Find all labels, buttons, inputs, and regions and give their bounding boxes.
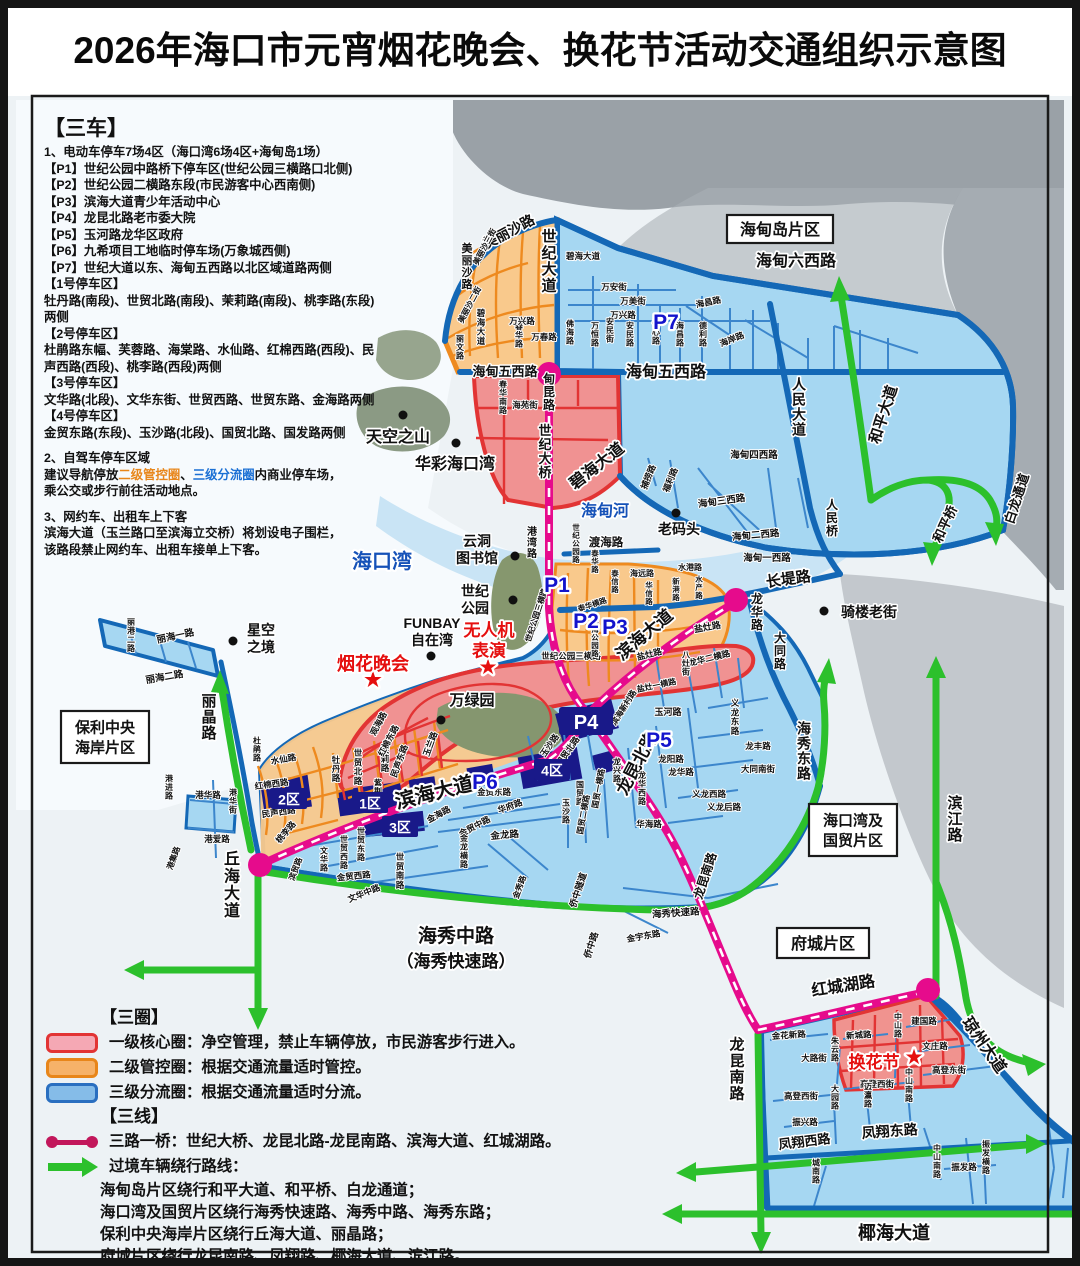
road-label: 德利路 xyxy=(698,320,708,347)
road-label: 牡丹路 xyxy=(332,755,341,783)
road-label: 龙丰路 xyxy=(744,741,771,751)
legend-line: 【P1】世纪公园中路桥下停车区(世纪公园三横路口北侧) xyxy=(44,161,380,178)
parking-marker: P7 xyxy=(653,311,679,334)
road-label: 甸昆路 xyxy=(542,371,556,412)
legend-line: 文华路(北段)、文华东街、世贸西路、世贸东路、金海路两侧 xyxy=(44,392,380,409)
control-ring-swatch xyxy=(46,1058,98,1078)
legend-line: 【P7】世纪大道以东、海甸五西路以北区域道路两侧 xyxy=(44,260,380,277)
road-label: 海甸五西路 xyxy=(626,362,707,381)
road-label: 龙阳路 xyxy=(657,754,684,764)
road-label: 华信路 xyxy=(645,580,653,606)
legend-line: 乘公交或步行前往活动地点。 xyxy=(44,483,380,500)
road-label: 龙兴路 xyxy=(612,756,622,783)
legend-line: 3、网约车、出租车上下客 xyxy=(44,509,380,526)
road-label: 万兴路 xyxy=(508,316,535,326)
legend-line: 【4号停车区】 xyxy=(44,408,380,425)
road-label: 义龙东路 xyxy=(730,698,740,736)
poi-dot xyxy=(509,596,518,605)
road-label: 安民路 xyxy=(626,320,635,347)
poi-label: 华彩海口湾 xyxy=(415,454,495,473)
poi-dot xyxy=(399,411,408,420)
event-label: 烟花晚会 xyxy=(337,653,409,674)
road-label: 万春路 xyxy=(530,332,557,342)
legend-rings-header: 【三圈】 xyxy=(100,1007,646,1029)
legend-line: 该路段禁止网约车、出租车接单上下客。 xyxy=(44,542,380,559)
road-label: 泰华路 xyxy=(590,548,599,574)
poi-dot xyxy=(820,607,829,616)
road-label: 丽港二路 xyxy=(127,618,136,653)
legend-line: 【P6】九希项目工地临时停车场(万象城西侧) xyxy=(44,243,380,260)
road-label: 金龙横路 xyxy=(459,833,469,869)
legend-item-core: 一级核心圈：净空管理，禁止车辆停放，市民游客步行进入。 xyxy=(46,1031,646,1054)
parking-marker: P4 xyxy=(574,712,599,734)
poi-dot xyxy=(672,509,681,518)
road-label: 新港路 xyxy=(672,576,680,602)
road-label: 美丽沙路 xyxy=(462,241,474,291)
road-label: 龙华路 xyxy=(751,591,764,632)
road-label: 朱云路 xyxy=(831,1035,840,1062)
bypass-line-baoli: 保利中央海岸片区绕行丘海大道、丽晶路； xyxy=(100,1224,646,1246)
poi-label: 老码头 xyxy=(658,521,700,537)
legend-parking: 【三车】 1、电动车停车7场4区（海口湾6场4区+海甸岛1场）【P1】世纪公园中… xyxy=(44,112,380,558)
road-label: 大路街 xyxy=(801,1053,827,1063)
control-ring-label: 二级管控圈：根据交通流量适时管控。 xyxy=(109,1056,371,1079)
road-label: 泰信路 xyxy=(610,568,619,594)
road-label: 水产路 xyxy=(695,574,703,600)
district-box-label: 保利中央 xyxy=(74,718,136,736)
poi-dot xyxy=(511,552,520,561)
district-box-label: 府城片区 xyxy=(791,934,855,953)
road-label: 大同路 xyxy=(774,630,787,671)
poi-label: FUNBAY xyxy=(403,615,461,631)
road-label: 大同南街 xyxy=(741,764,776,774)
road-label: 振发路 xyxy=(951,1162,977,1172)
road-label: 振发横路 xyxy=(981,1139,991,1175)
poi-dot xyxy=(427,652,436,661)
road-label: 文庄路 xyxy=(922,1041,948,1051)
legend-spacer xyxy=(44,441,380,450)
road-label: 万安街 xyxy=(600,282,627,292)
road-label: 世贸南路 xyxy=(396,852,405,890)
poi-dot xyxy=(452,439,461,448)
poi-label: 之境 xyxy=(247,639,275,655)
road-label: 高登西街 xyxy=(784,1091,819,1101)
road-label: 义龙西路 xyxy=(691,789,727,799)
road-label: 城南路 xyxy=(812,1157,821,1184)
event-label: 换花节 xyxy=(849,1052,900,1072)
poi-dot xyxy=(437,716,446,725)
parking-marker: P2 xyxy=(573,610,599,633)
road-label: 港华街 xyxy=(228,787,238,814)
road-label: 海远路 xyxy=(630,568,655,578)
road-label: 世贸西路 xyxy=(340,834,349,870)
road-label: 中山南路 xyxy=(933,1143,942,1179)
road-label: 碧海大道 xyxy=(565,251,601,261)
road-label: 世贸北路 xyxy=(354,748,363,786)
road-label: 渡海路 xyxy=(589,535,624,549)
district-box-label: 国贸片区 xyxy=(823,831,883,849)
bypass-line-fucheng: 府城片区绕行龙昆南路、凤翔路、椰海大道、滨江路。 xyxy=(100,1246,646,1266)
legend-line: 滨海大道（玉兰路口至滨海立交桥）将划设电子围栏， xyxy=(44,525,380,542)
poi-label: 世纪 xyxy=(461,583,489,599)
zone-tag: 3区 xyxy=(389,820,411,836)
road-label: 中山路 xyxy=(894,1011,903,1038)
road-label: 新城路 xyxy=(846,1029,873,1041)
road-label: 玉沙路 xyxy=(562,798,571,824)
road-label: 港爱路 xyxy=(204,834,230,844)
road-label: 海甸六西路 xyxy=(756,251,837,270)
legend-line: 【P4】龙昆北路老市委大院 xyxy=(44,210,380,227)
road-label: 港华路 xyxy=(195,790,221,800)
legend-line: 【2号停车区】 xyxy=(44,326,380,343)
road-label: 滨江路 xyxy=(947,794,963,844)
poster-page: 2026年海口市元宵烟花晚会、换花节活动交通组织示意图 xyxy=(0,0,1080,1266)
road-label: 水港路 xyxy=(677,562,703,572)
road-label: 安民街 xyxy=(605,316,614,343)
road-label: 八灶街 xyxy=(681,650,691,676)
legend-line: 杜鹃路东幅、芙蓉路、海棠路、水仙路、红棉西路(西段)、民声西路(西段)、桃李路(… xyxy=(44,342,380,375)
legend-parking-header: 【三车】 xyxy=(44,112,380,142)
road-label: 丽文路 xyxy=(456,334,465,360)
bypass-header: 过境车辆绕行路线： xyxy=(109,1155,248,1178)
road-label: 高登东街 xyxy=(932,1065,967,1075)
legend-line: 建议导航停放二级管控圈、三级分流圈内商业停车场， xyxy=(44,467,380,484)
legend-line: 金贸东路(东段)、玉沙路(北段)、国贸北路、国发路两侧 xyxy=(44,425,380,442)
poi-label: 云洞 xyxy=(463,533,491,549)
road-label: 中山南路 xyxy=(905,1067,914,1103)
event-label: 无人机 xyxy=(463,620,515,640)
legend-line: 【1号停车区】 xyxy=(44,276,380,293)
route-line-swatch xyxy=(46,1132,98,1152)
zone-tag: 4区 xyxy=(541,763,563,779)
legend-item-route: 三路一桥：世纪大桥、龙昆北路-龙昆南路、滨海大道、红城湖路。 xyxy=(46,1130,646,1153)
divert-ring-swatch xyxy=(46,1083,98,1103)
legend-item-control: 二级管控圈：根据交通流量适时管控。 xyxy=(46,1056,646,1079)
legend-rings-lines: 【三圈】 一级核心圈：净空管理，禁止车辆停放，市民游客步行进入。 二级管控圈：根… xyxy=(46,1007,646,1266)
legend-line: 【3号停车区】 xyxy=(44,375,380,392)
road-label: 海甸一西路 xyxy=(743,552,791,564)
road-label: 杜鹃路 xyxy=(253,735,262,762)
poi-dot xyxy=(229,637,238,646)
poi-label: 骑楼老街 xyxy=(841,604,897,620)
district-box-label: 海岸片区 xyxy=(75,738,135,756)
road-label: 丽晶路 xyxy=(201,693,217,742)
legend-spacer xyxy=(44,500,380,509)
road-label: 港进路 xyxy=(165,773,174,800)
legend-line: 【P5】玉河路龙华区政府 xyxy=(44,227,380,244)
district-box-label: 海口湾及 xyxy=(823,811,884,829)
road-label: 建国路 xyxy=(910,1016,937,1026)
road-label: 大园路 xyxy=(831,1083,840,1110)
road-label: 龙华路 xyxy=(667,767,694,777)
legend-line: 【P2】世纪公园二横路东段(市民游客中心西南侧) xyxy=(44,177,380,194)
bypass-line-haidian: 海甸岛片区绕行和平大道、和平桥、白龙通道； xyxy=(100,1180,646,1202)
poi-label: 自在湾 xyxy=(411,632,453,648)
legend-lines-header: 【三线】 xyxy=(100,1106,646,1128)
road-label: 万恒路 xyxy=(590,321,600,347)
divert-ring-label: 三级分流圈：根据交通流量适时分流。 xyxy=(109,1081,371,1104)
road-label: 海甸四西路 xyxy=(730,449,778,461)
road-label: 佛海路 xyxy=(565,318,575,345)
road-label: 世纪公园路 xyxy=(572,522,580,564)
road-label: 世纪大道 xyxy=(541,228,556,295)
road-label: 海甸五西路 xyxy=(472,364,538,379)
road-label: （海秀快速路） xyxy=(397,951,516,971)
road-label: 丘海大道 xyxy=(224,850,240,920)
parking-marker: P1 xyxy=(544,574,570,597)
legend-item-divert: 三级分流圈：根据交通流量适时分流。 xyxy=(46,1081,646,1104)
parking-marker: P5 xyxy=(646,729,672,752)
road-label: 文华路 xyxy=(320,845,329,872)
core-ring-swatch xyxy=(46,1033,98,1053)
legend-item-bypass: 过境车辆绕行路线： xyxy=(46,1155,646,1178)
zone-tag: 1区 xyxy=(359,796,381,812)
road-label: 世纪大桥 xyxy=(538,423,552,480)
road-label: 碧海大道 xyxy=(476,308,486,346)
legend-line: 【P3】滨海大道青少年活动中心 xyxy=(44,194,380,211)
road-label: 龙华西路 xyxy=(637,770,647,806)
poi-label: 星空 xyxy=(247,622,275,638)
parking-marker: P3 xyxy=(602,616,628,639)
route-line-label: 三路一桥：世纪大桥、龙昆北路-龙昆南路、滨海大道、红城湖路。 xyxy=(109,1130,560,1153)
road-label: 海秀中路 xyxy=(418,924,495,947)
event-star-icon: ★ xyxy=(904,1045,923,1069)
road-label: 龙昆南路 xyxy=(728,1036,745,1103)
district-box-label: 海甸岛片区 xyxy=(740,220,820,239)
legend-line: 2、自驾车停车区域 xyxy=(44,450,380,467)
core-ring-label: 一级核心圈：净空管理，禁止车辆停放，市民游客步行进入。 xyxy=(109,1031,525,1054)
road-label: 港湾路 xyxy=(527,525,538,560)
road-label: 人民桥 xyxy=(826,497,839,538)
poi-label: 万绿园 xyxy=(448,691,494,709)
road-label: 万美街 xyxy=(619,296,646,306)
zone-tag: 2区 xyxy=(278,792,300,808)
road-label: 振兴路 xyxy=(792,1117,818,1127)
poi-label: 图书馆 xyxy=(456,550,498,566)
road-label: 春华南路 xyxy=(499,379,508,415)
poi-label: 公园 xyxy=(461,600,489,616)
road-label: 玉河路 xyxy=(654,706,682,717)
bypass-arrow-swatch xyxy=(46,1157,98,1177)
road-label: 海甸河 xyxy=(581,501,629,520)
road-label: 迈瀛路 xyxy=(864,1082,873,1108)
road-label: 海秀东路 xyxy=(796,720,812,781)
road-label: 义龙后路 xyxy=(706,802,742,812)
road-label: 世贸东路 xyxy=(357,826,366,862)
road-label: 椰海大道 xyxy=(858,1222,930,1243)
event-label: 表演 xyxy=(472,640,506,660)
road-label: 华海路 xyxy=(636,819,662,829)
road-label: 海苑街 xyxy=(512,400,538,410)
legend-line: 牡丹路(南段)、世贸北路(南段)、茉莉路(南段)、桃李路(东段)两侧 xyxy=(44,293,380,326)
legend-line: 1、电动车停车7场4区（海口湾6场4区+海甸岛1场） xyxy=(44,144,380,161)
parking-marker: P6 xyxy=(472,771,498,794)
bypass-line-bay: 海口湾及国贸片区绕行海秀快速路、海秀中路、海秀东路； xyxy=(100,1202,646,1224)
road-label: 人民大道 xyxy=(792,376,807,437)
